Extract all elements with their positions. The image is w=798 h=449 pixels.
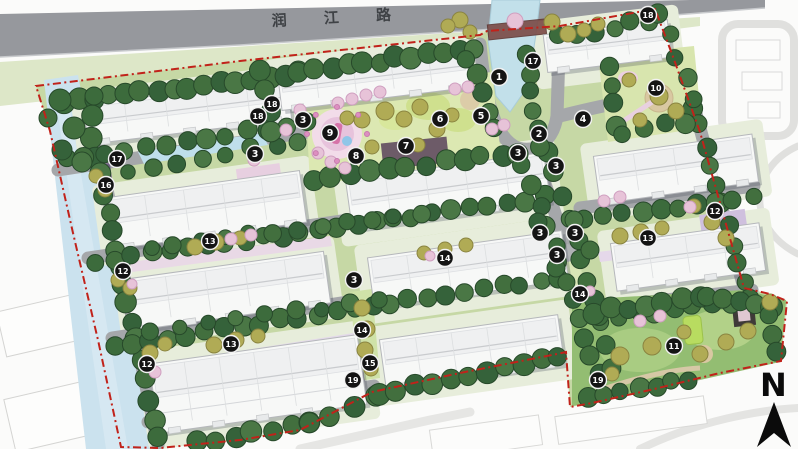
tree <box>553 187 572 206</box>
plan-marker-number: 18 <box>252 112 264 121</box>
tree <box>127 279 137 289</box>
tree <box>521 175 541 195</box>
plan-marker-number: 13 <box>204 237 215 246</box>
tree <box>261 121 281 141</box>
tree <box>141 323 158 340</box>
tree <box>148 427 167 446</box>
tree <box>507 13 523 29</box>
tree <box>173 320 187 334</box>
plan-marker-4: 4 <box>575 111 592 128</box>
tree <box>475 279 493 297</box>
tree <box>763 325 782 344</box>
plan-marker-3: 3 <box>346 272 363 289</box>
plan-marker-number: 19 <box>592 376 604 385</box>
tree <box>471 146 489 164</box>
tree <box>249 60 270 81</box>
plan-marker-number: 14 <box>574 290 586 299</box>
plan-marker-1: 1 <box>491 69 508 86</box>
tree <box>365 140 379 154</box>
tree <box>677 325 691 339</box>
plan-marker-number: 6 <box>437 114 444 125</box>
plan-marker-14: 14 <box>572 286 589 303</box>
tree <box>436 150 456 170</box>
tree <box>335 159 340 164</box>
plan-marker-number: 3 <box>554 250 561 261</box>
tree <box>122 246 140 264</box>
plan-marker-number: 14 <box>356 326 368 335</box>
tree <box>145 241 160 256</box>
plan-marker-8: 8 <box>348 148 365 165</box>
tree <box>63 117 85 139</box>
tree <box>351 52 372 73</box>
tree <box>385 381 405 401</box>
plan-marker-number: 12 <box>117 267 128 276</box>
tree <box>280 124 292 136</box>
tree <box>441 19 455 33</box>
tree <box>459 238 473 252</box>
tree <box>701 157 718 174</box>
tree <box>206 337 222 353</box>
tree <box>486 123 498 135</box>
tree <box>356 112 361 117</box>
tree <box>533 198 550 215</box>
tree <box>633 113 647 127</box>
plan-marker-number: 4 <box>580 114 587 125</box>
tree <box>441 200 461 220</box>
plan-marker-number: 3 <box>300 115 307 126</box>
tree <box>412 99 428 115</box>
tree <box>340 111 354 125</box>
tree <box>287 301 305 319</box>
tree <box>740 323 756 339</box>
tree <box>264 422 283 441</box>
tree <box>319 166 340 187</box>
tree <box>196 129 216 149</box>
tree <box>168 155 186 173</box>
tree <box>600 57 618 75</box>
tree <box>598 195 610 207</box>
tree <box>577 23 591 37</box>
plan-marker-number: 11 <box>668 342 680 351</box>
tree <box>600 297 621 318</box>
tree <box>574 329 593 348</box>
plan-marker-3: 3 <box>532 225 549 242</box>
tree <box>304 59 324 79</box>
tree <box>335 105 340 110</box>
tree <box>612 228 628 244</box>
tree <box>106 337 125 356</box>
tree <box>499 194 516 211</box>
plan-marker-18: 18 <box>264 96 281 113</box>
tree <box>462 81 474 93</box>
tree <box>654 310 666 322</box>
plan-marker-number: 13 <box>225 340 236 349</box>
tree <box>713 289 732 308</box>
plan-marker-12: 12 <box>707 203 724 220</box>
tree <box>580 346 599 365</box>
tree <box>359 160 381 182</box>
plan-marker-number: 3 <box>572 228 579 239</box>
plan-marker-number: 17 <box>527 57 538 66</box>
plan-marker-number: 14 <box>439 254 451 263</box>
tree <box>604 78 620 94</box>
plan-marker-number: 10 <box>650 84 662 93</box>
plan-marker-number: 18 <box>266 100 278 109</box>
tree <box>762 294 778 310</box>
plan-marker-14: 14 <box>354 322 371 339</box>
tree <box>374 86 386 98</box>
tree <box>456 284 474 302</box>
tree <box>157 136 176 155</box>
tree <box>187 239 203 255</box>
tree <box>672 288 693 309</box>
plan-marker-number: 7 <box>403 141 410 152</box>
tree <box>314 303 328 317</box>
tree <box>289 222 306 239</box>
plan-marker-number: 16 <box>100 181 112 190</box>
tree <box>315 219 331 235</box>
tree <box>395 157 414 176</box>
plan-marker-number: 2 <box>536 129 543 140</box>
tree <box>548 348 566 366</box>
tree <box>121 165 135 179</box>
tree <box>289 134 306 151</box>
tree <box>581 241 599 259</box>
plan-marker-number: 3 <box>351 275 358 286</box>
plan-marker-13: 13 <box>223 336 240 353</box>
plan-marker-number: 8 <box>353 151 360 162</box>
tree <box>604 93 623 112</box>
tree <box>251 329 265 343</box>
tree <box>496 358 514 376</box>
plan-marker-number: 13 <box>642 234 653 243</box>
tree <box>228 311 243 326</box>
tree <box>49 89 71 111</box>
plan-marker-number: 3 <box>553 161 560 172</box>
tree <box>129 81 149 101</box>
tree <box>425 251 435 261</box>
tree <box>376 102 394 120</box>
plan-marker-13: 13 <box>640 230 657 247</box>
tree <box>614 126 631 143</box>
tree <box>371 292 387 308</box>
tree <box>613 204 630 221</box>
tree <box>461 198 478 215</box>
tree <box>87 255 104 272</box>
tree <box>655 221 669 235</box>
plan-marker-number: 9 <box>327 128 334 139</box>
plan-marker-number: 3 <box>537 228 544 239</box>
site-plan-canvas: 1233333333456789101112121213131314141415… <box>0 0 798 449</box>
tree <box>634 315 646 327</box>
tree <box>217 129 233 145</box>
plan-marker-3: 3 <box>510 145 527 162</box>
plan-marker-7: 7 <box>398 138 415 155</box>
plan-marker-3: 3 <box>295 112 312 129</box>
tree <box>264 225 282 243</box>
tree <box>511 277 528 294</box>
tree <box>122 335 142 355</box>
plan-marker-12: 12 <box>139 356 156 373</box>
plan-marker-number: 12 <box>141 360 152 369</box>
plan-marker-5: 5 <box>473 108 490 125</box>
plan-marker-number: 3 <box>252 149 259 160</box>
tree <box>102 221 122 241</box>
tree <box>698 138 717 157</box>
plan-marker-19: 19 <box>590 372 607 389</box>
tree <box>346 93 358 105</box>
tree <box>72 152 92 172</box>
tree <box>622 73 636 87</box>
plan-marker-number: 18 <box>642 11 654 20</box>
tree <box>386 209 401 224</box>
tree <box>524 103 541 120</box>
tree <box>417 157 436 176</box>
plan-marker-9: 9 <box>322 125 339 142</box>
tree <box>138 138 155 155</box>
tree <box>364 212 381 229</box>
tree <box>39 109 57 127</box>
plan-marker-10: 10 <box>648 80 665 97</box>
tree <box>339 162 351 174</box>
plan-marker-3: 3 <box>567 225 584 242</box>
tree <box>459 367 477 385</box>
tree <box>206 432 224 449</box>
tree <box>668 103 684 119</box>
tree <box>560 26 576 42</box>
tree <box>179 132 197 150</box>
plan-marker-6: 6 <box>432 111 449 128</box>
tree <box>522 82 539 99</box>
tree <box>723 191 741 209</box>
tree <box>256 306 272 322</box>
tree <box>225 233 237 245</box>
plan-marker-18: 18 <box>250 108 267 125</box>
tree <box>746 188 762 204</box>
tree <box>102 204 120 222</box>
plan-marker-2: 2 <box>531 126 548 143</box>
tree <box>194 150 211 167</box>
tree <box>365 132 370 137</box>
plan-marker-number: 17 <box>111 155 122 164</box>
tree <box>594 207 611 224</box>
tree <box>652 200 671 219</box>
tree <box>534 273 550 289</box>
tree <box>413 205 431 223</box>
tree <box>449 83 461 95</box>
tree <box>684 201 696 213</box>
plan-marker-15: 15 <box>362 355 379 372</box>
tree <box>217 147 232 162</box>
tree <box>360 89 372 101</box>
tree <box>614 191 626 203</box>
tree <box>187 431 207 449</box>
tree <box>498 119 510 131</box>
tree <box>398 289 417 308</box>
tree <box>692 346 708 362</box>
plan-marker-11: 11 <box>666 338 683 355</box>
plan-marker-12: 12 <box>115 263 132 280</box>
tree <box>313 151 318 156</box>
tree <box>436 286 455 305</box>
plan-marker-number: 5 <box>478 111 485 122</box>
tree <box>138 391 159 412</box>
tree <box>718 334 734 350</box>
tree <box>643 337 661 355</box>
plan-marker-14: 14 <box>437 250 454 267</box>
tree <box>82 105 103 126</box>
plan-marker-13: 13 <box>202 233 219 250</box>
tree <box>633 202 653 222</box>
plan-marker-17: 17 <box>525 53 542 70</box>
tree <box>478 197 496 215</box>
tree <box>473 83 492 102</box>
plan-marker-19: 19 <box>345 372 362 389</box>
tree <box>164 237 181 254</box>
tree <box>245 229 257 241</box>
tree <box>621 12 639 30</box>
plan-marker-17: 17 <box>109 151 126 168</box>
tree <box>396 111 412 127</box>
plan-marker-number: 3 <box>515 148 522 159</box>
tree <box>85 87 103 105</box>
tree <box>305 132 310 137</box>
plan-marker-3: 3 <box>548 158 565 175</box>
tree <box>201 315 216 330</box>
plan-marker-number: 1 <box>496 72 503 83</box>
tree <box>419 289 437 307</box>
plan-marker-number: 19 <box>347 376 359 385</box>
site-plan-page: 1233333333456789101112121213131314141415… <box>0 0 798 449</box>
tree <box>354 300 370 316</box>
plan-marker-16: 16 <box>98 177 115 194</box>
plan-marker-3: 3 <box>549 247 566 264</box>
tree <box>339 214 355 230</box>
plan-marker-3: 3 <box>247 146 264 163</box>
plan-marker-number: 12 <box>709 207 720 216</box>
tree <box>158 337 172 351</box>
tree <box>194 75 214 95</box>
tree <box>441 369 461 389</box>
plan-marker-18: 18 <box>640 7 657 24</box>
tree <box>313 112 318 117</box>
tree <box>344 397 365 418</box>
north-label: N <box>760 366 787 404</box>
tree <box>240 421 261 442</box>
tree <box>513 354 535 376</box>
tree <box>611 347 629 365</box>
plan-marker-number: 15 <box>364 359 376 368</box>
tree <box>619 300 637 318</box>
tree <box>145 159 163 177</box>
